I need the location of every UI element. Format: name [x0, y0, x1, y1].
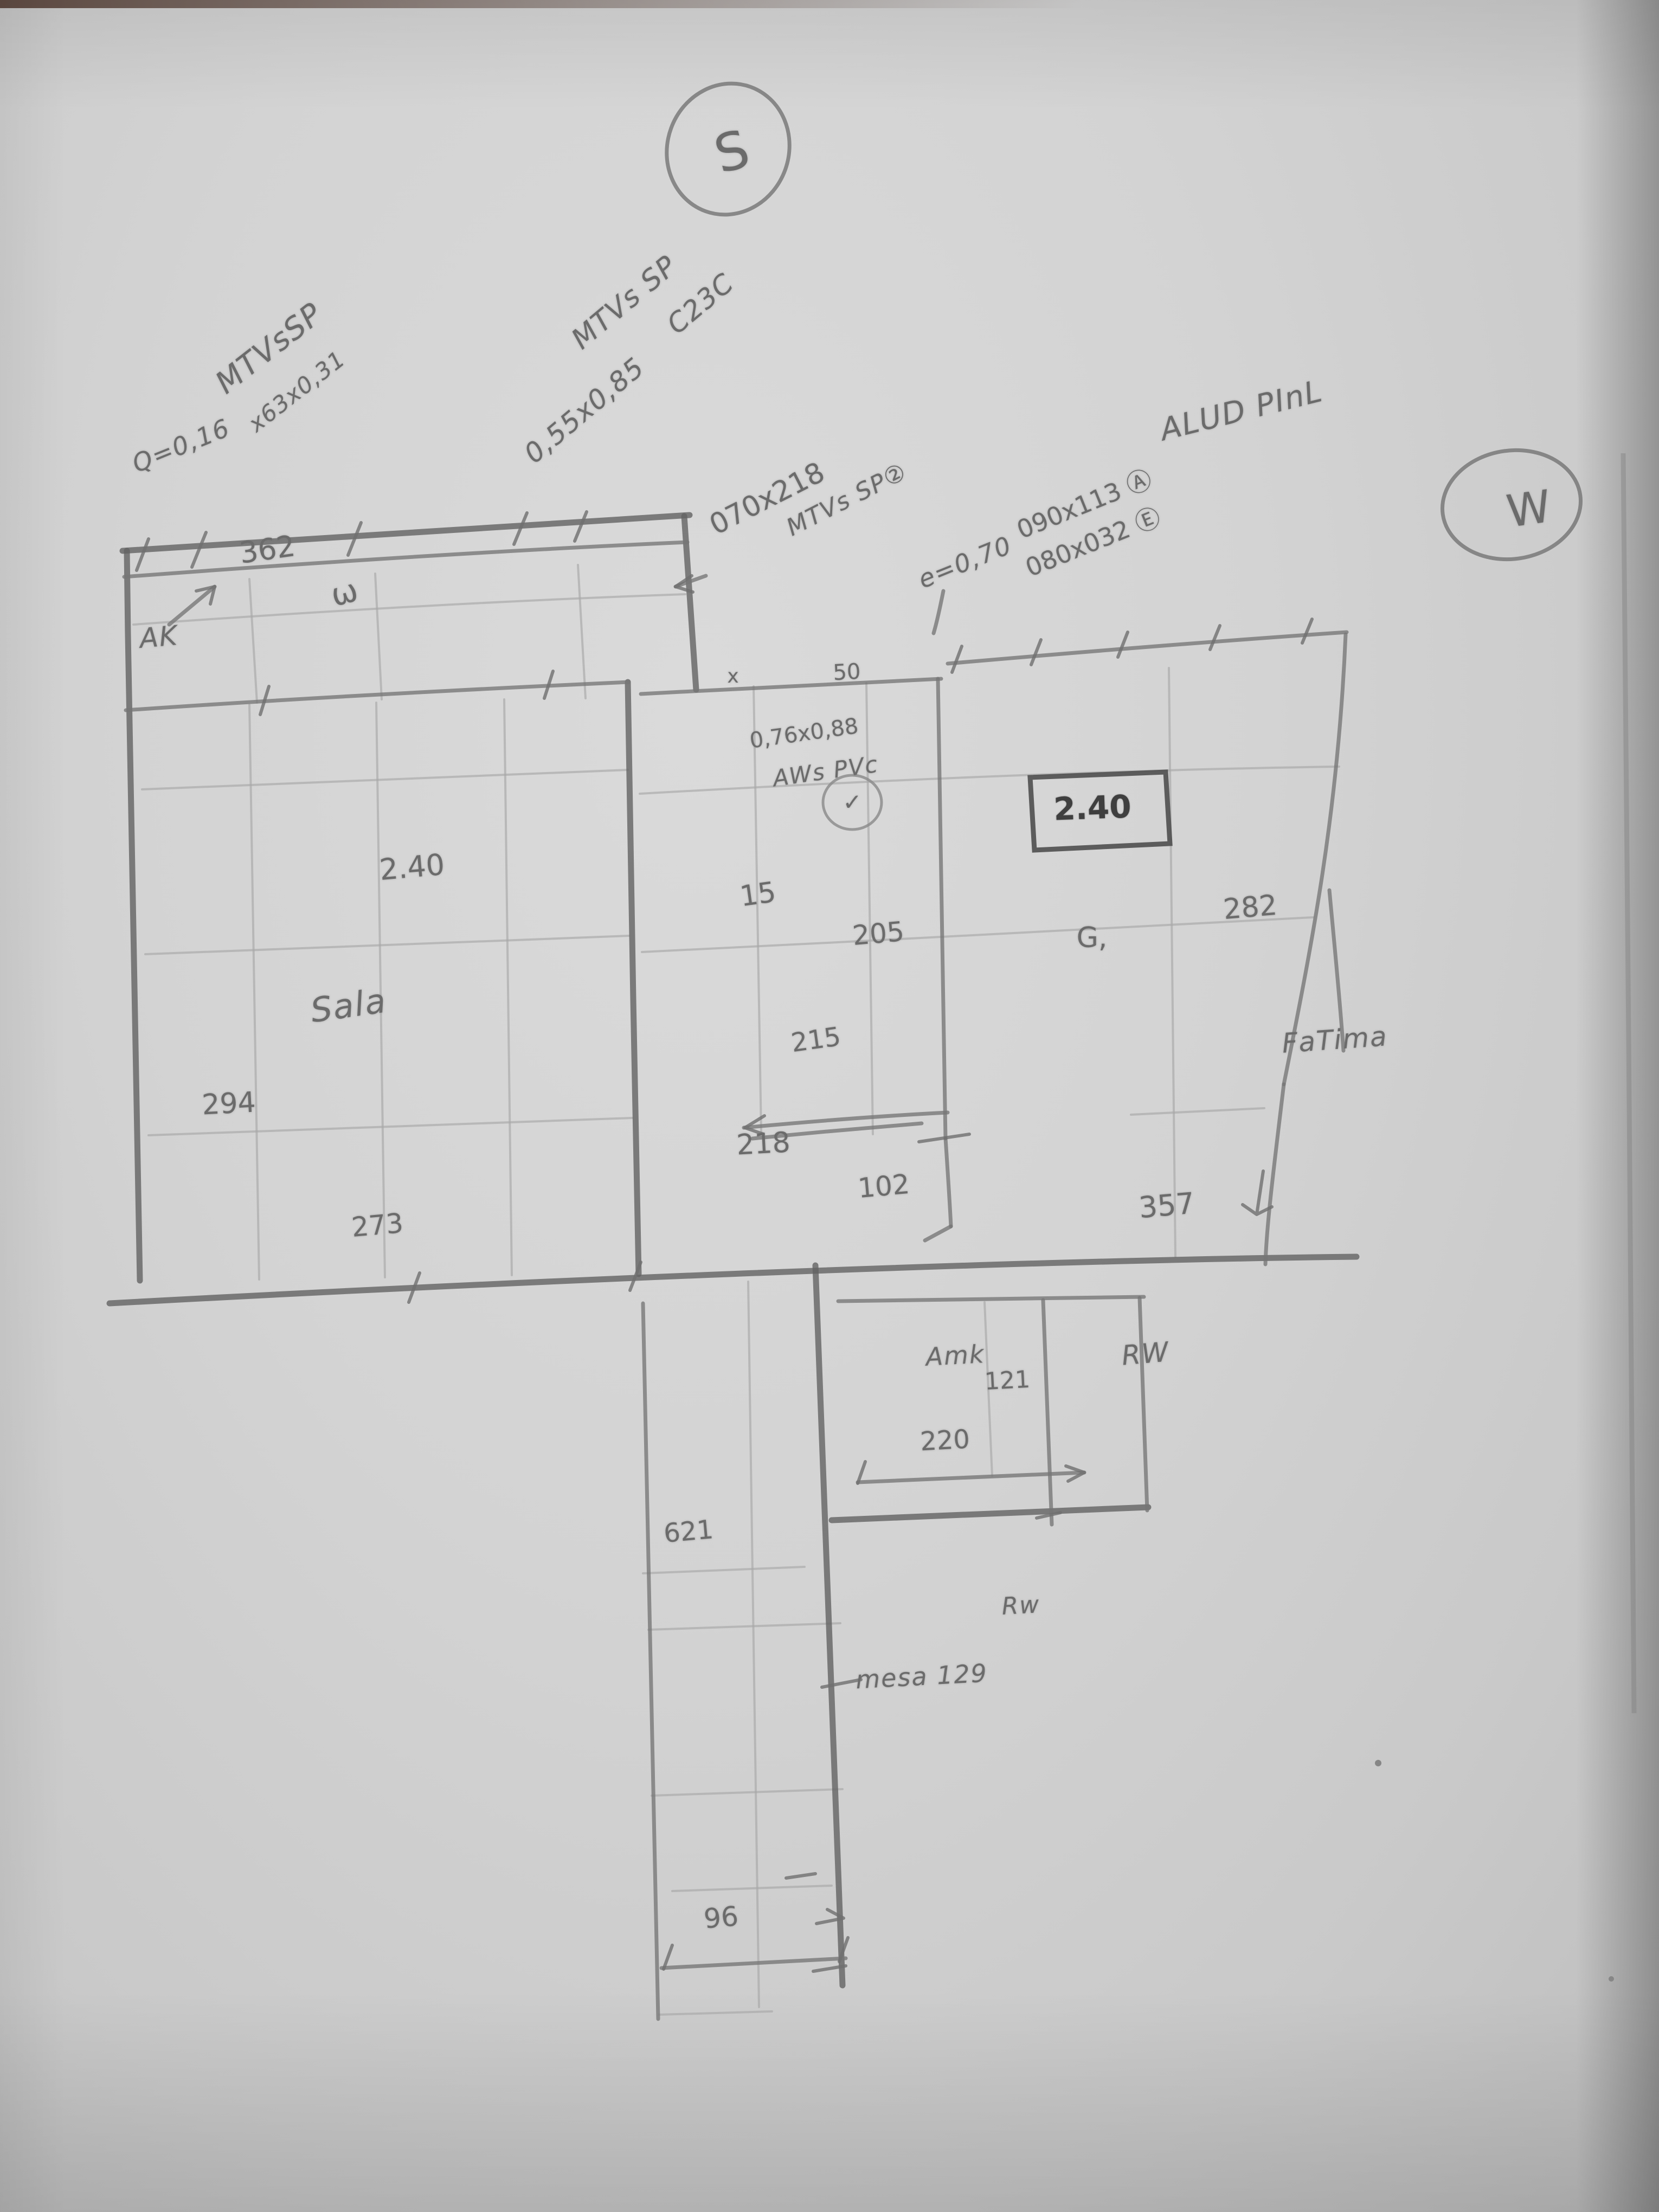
label-dim-294: 294 — [201, 1088, 256, 1119]
paper-edge-line — [1623, 453, 1634, 1713]
label-dim-50: 50 — [833, 661, 861, 684]
label-dim-121: 121 — [984, 1368, 1031, 1394]
label-dim-15: 15 — [738, 878, 778, 911]
label-x-mark: x — [727, 667, 738, 686]
pencil-dot — [1375, 1760, 1381, 1766]
paper-photo: S W MTVsSP Q=0,16 x63x0,31 MTVs SP 0,55x… — [0, 0, 1659, 2212]
label-dim-205: 205 — [851, 918, 905, 949]
label-g-mark: G, — [1077, 924, 1108, 952]
label-dim-102: 102 — [857, 1171, 910, 1202]
symbols — [648, 66, 1634, 1982]
label-dim-273: 273 — [350, 1210, 404, 1241]
label-dim-220: 220 — [919, 1426, 970, 1455]
pencil-dot — [1609, 1976, 1614, 1982]
label-dim-357: 357 — [1137, 1189, 1195, 1223]
wall-lines-medium — [124, 542, 1347, 2019]
label-boxed-height: 2.40 — [1053, 791, 1131, 825]
label-room-height: 2.40 — [378, 850, 446, 885]
label-ak: AK — [138, 622, 179, 652]
compass-west-label: W — [1504, 485, 1554, 535]
label-dim-282: 282 — [1222, 891, 1278, 924]
label-mesa-129: mesa 129 — [855, 1661, 988, 1693]
label-dim-96: 96 — [703, 1902, 740, 1932]
label-rw-lower: Rw — [1001, 1593, 1041, 1619]
label-rw-upper: RW — [1121, 1338, 1171, 1369]
label-amk: Amk — [925, 1341, 985, 1369]
label-sala: Sala — [308, 984, 389, 1028]
dimension-ticks — [137, 512, 1312, 1971]
label-dim-215: 215 — [789, 1024, 842, 1056]
label-circled-check: ✓ — [843, 791, 861, 814]
label-dim-218: 218 — [736, 1128, 791, 1159]
label-fatima: FaTima — [1281, 1023, 1388, 1057]
label-dim-362: 362 — [237, 531, 297, 568]
label-dim-621: 621 — [663, 1516, 714, 1547]
